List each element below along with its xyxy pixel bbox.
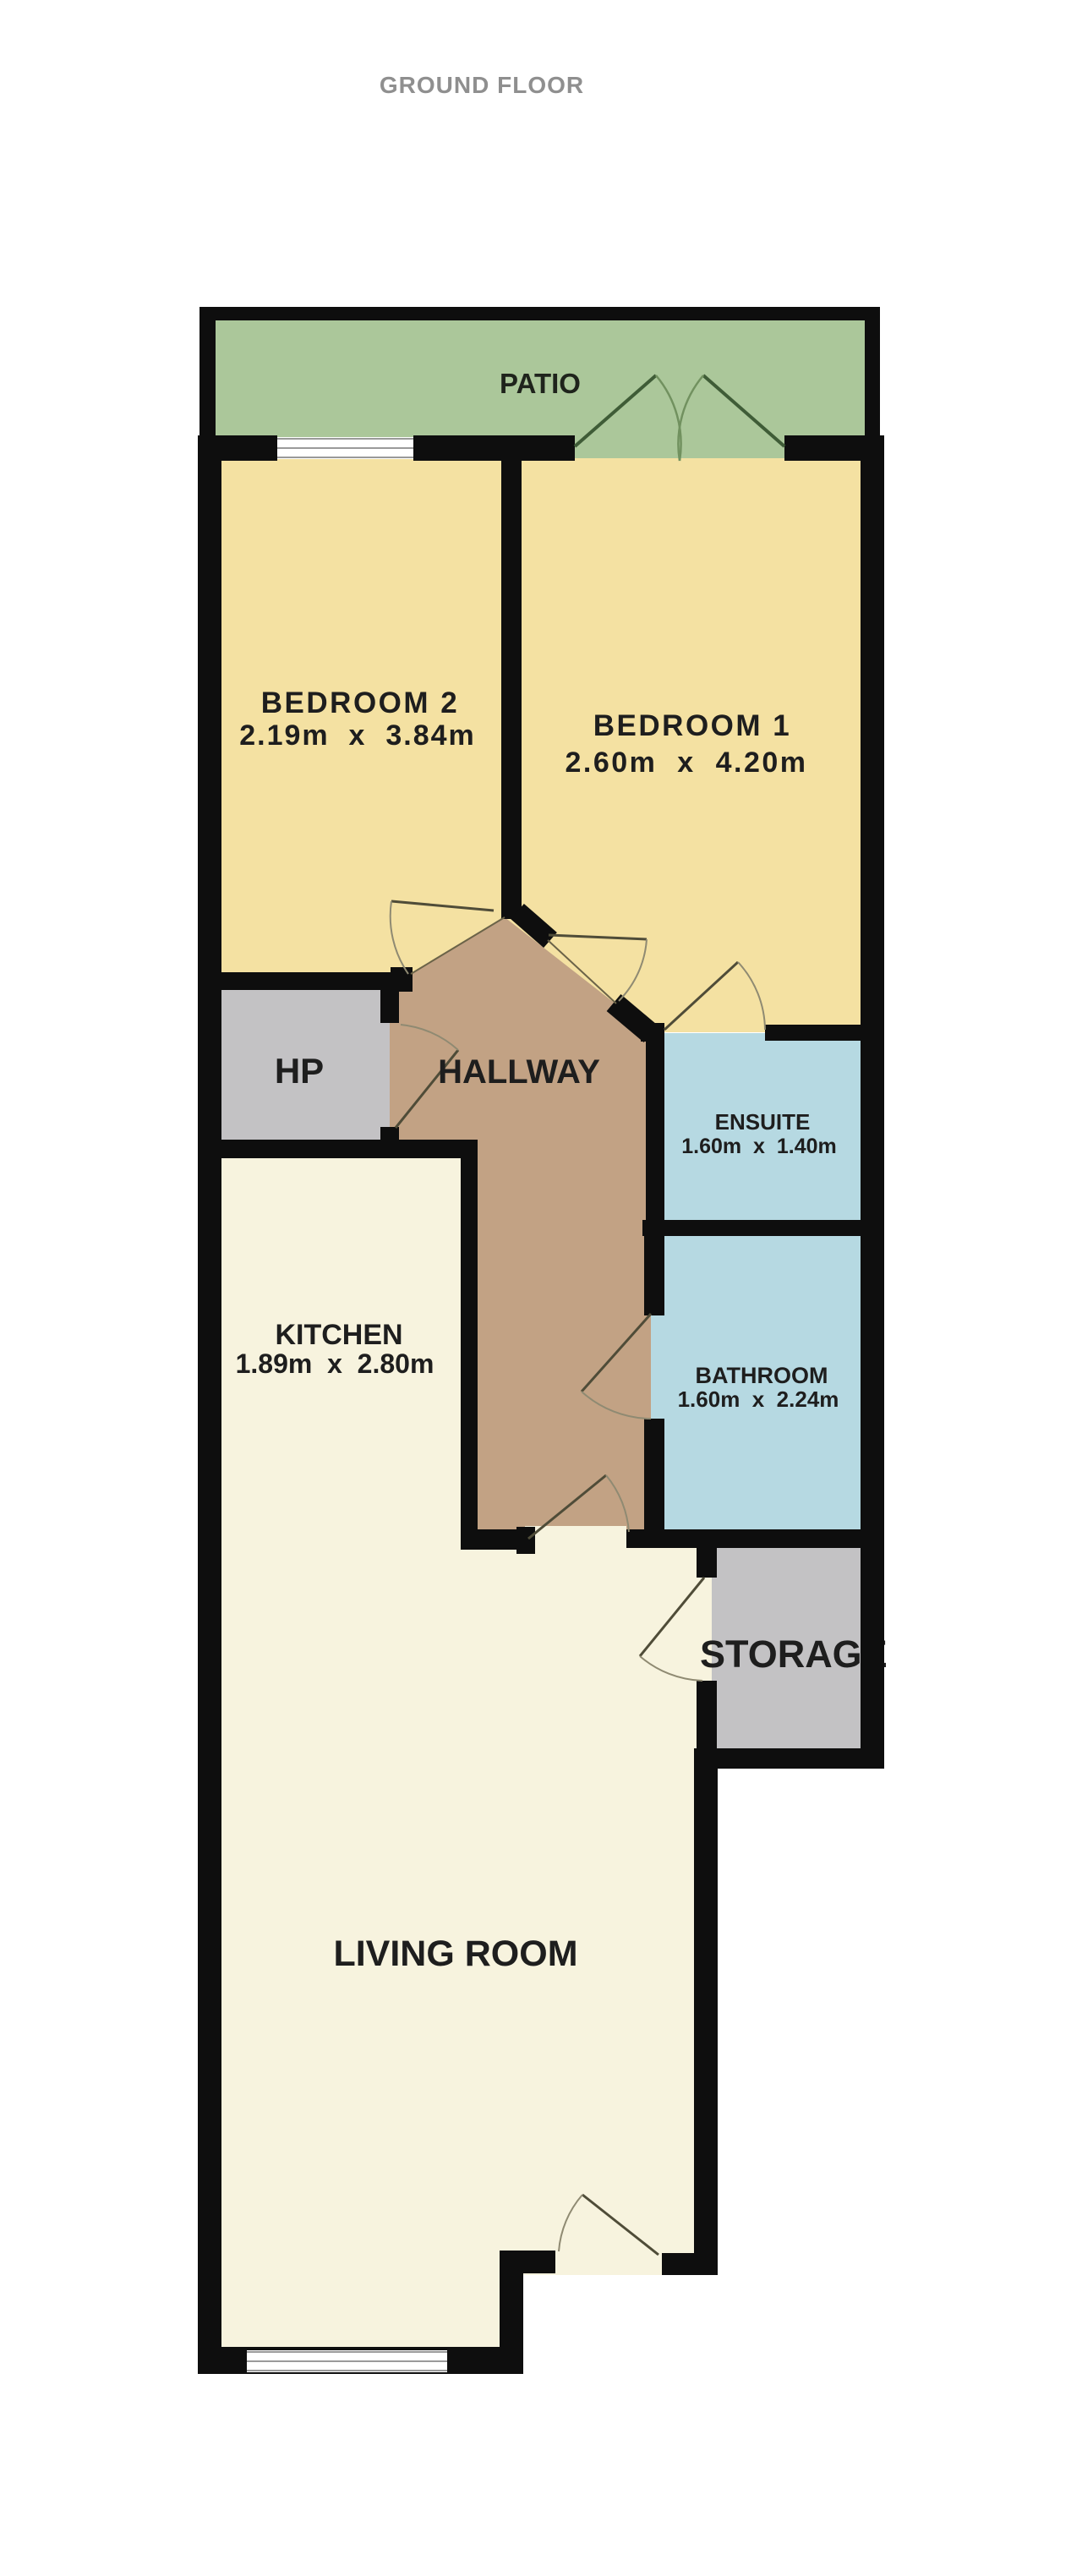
svg-text:1.60m x 2.24m: 1.60m x 2.24m: [678, 1386, 839, 1412]
svg-text:1.89m x 2.80m: 1.89m x 2.80m: [236, 1348, 434, 1379]
svg-text:1.60m x 1.40m: 1.60m x 1.40m: [681, 1135, 836, 1158]
svg-text:2.60m x 4.20m: 2.60m x 4.20m: [565, 747, 807, 779]
svg-text:HALLWAY: HALLWAY: [438, 1053, 600, 1091]
svg-text:GROUND FLOOR: GROUND FLOOR: [380, 72, 584, 98]
svg-text:HP: HP: [275, 1051, 324, 1091]
svg-text:LIVING ROOM: LIVING ROOM: [333, 1933, 577, 1974]
svg-text:2.19m x 3.84m: 2.19m x 3.84m: [239, 719, 476, 752]
svg-text:PATIO: PATIO: [500, 368, 581, 399]
svg-text:BATHROOM: BATHROOM: [696, 1363, 828, 1388]
svg-text:BEDROOM 1: BEDROOM 1: [593, 709, 791, 742]
svg-text:KITCHEN: KITCHEN: [275, 1319, 402, 1351]
svg-text:ENSUITE: ENSUITE: [715, 1109, 811, 1135]
svg-text:STORAGE: STORAGE: [700, 1633, 888, 1676]
svg-text:BEDROOM 2: BEDROOM 2: [261, 686, 459, 719]
